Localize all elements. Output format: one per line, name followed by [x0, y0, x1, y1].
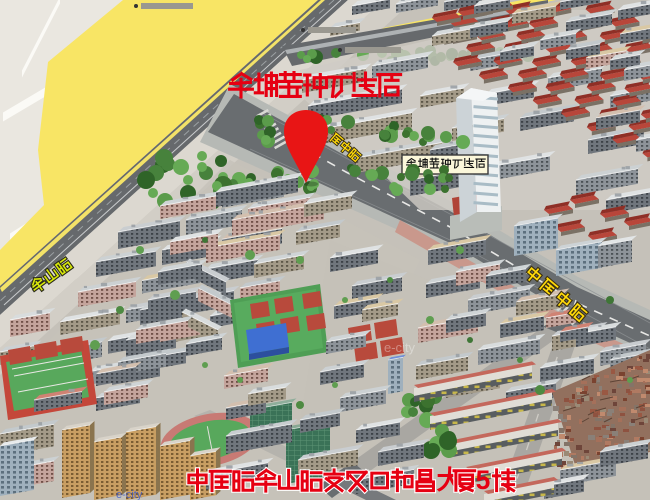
svg-text:5: 5 [476, 465, 491, 495]
svg-text:e-city: e-city [116, 489, 143, 500]
svg-text:e-city: e-city [384, 340, 416, 355]
